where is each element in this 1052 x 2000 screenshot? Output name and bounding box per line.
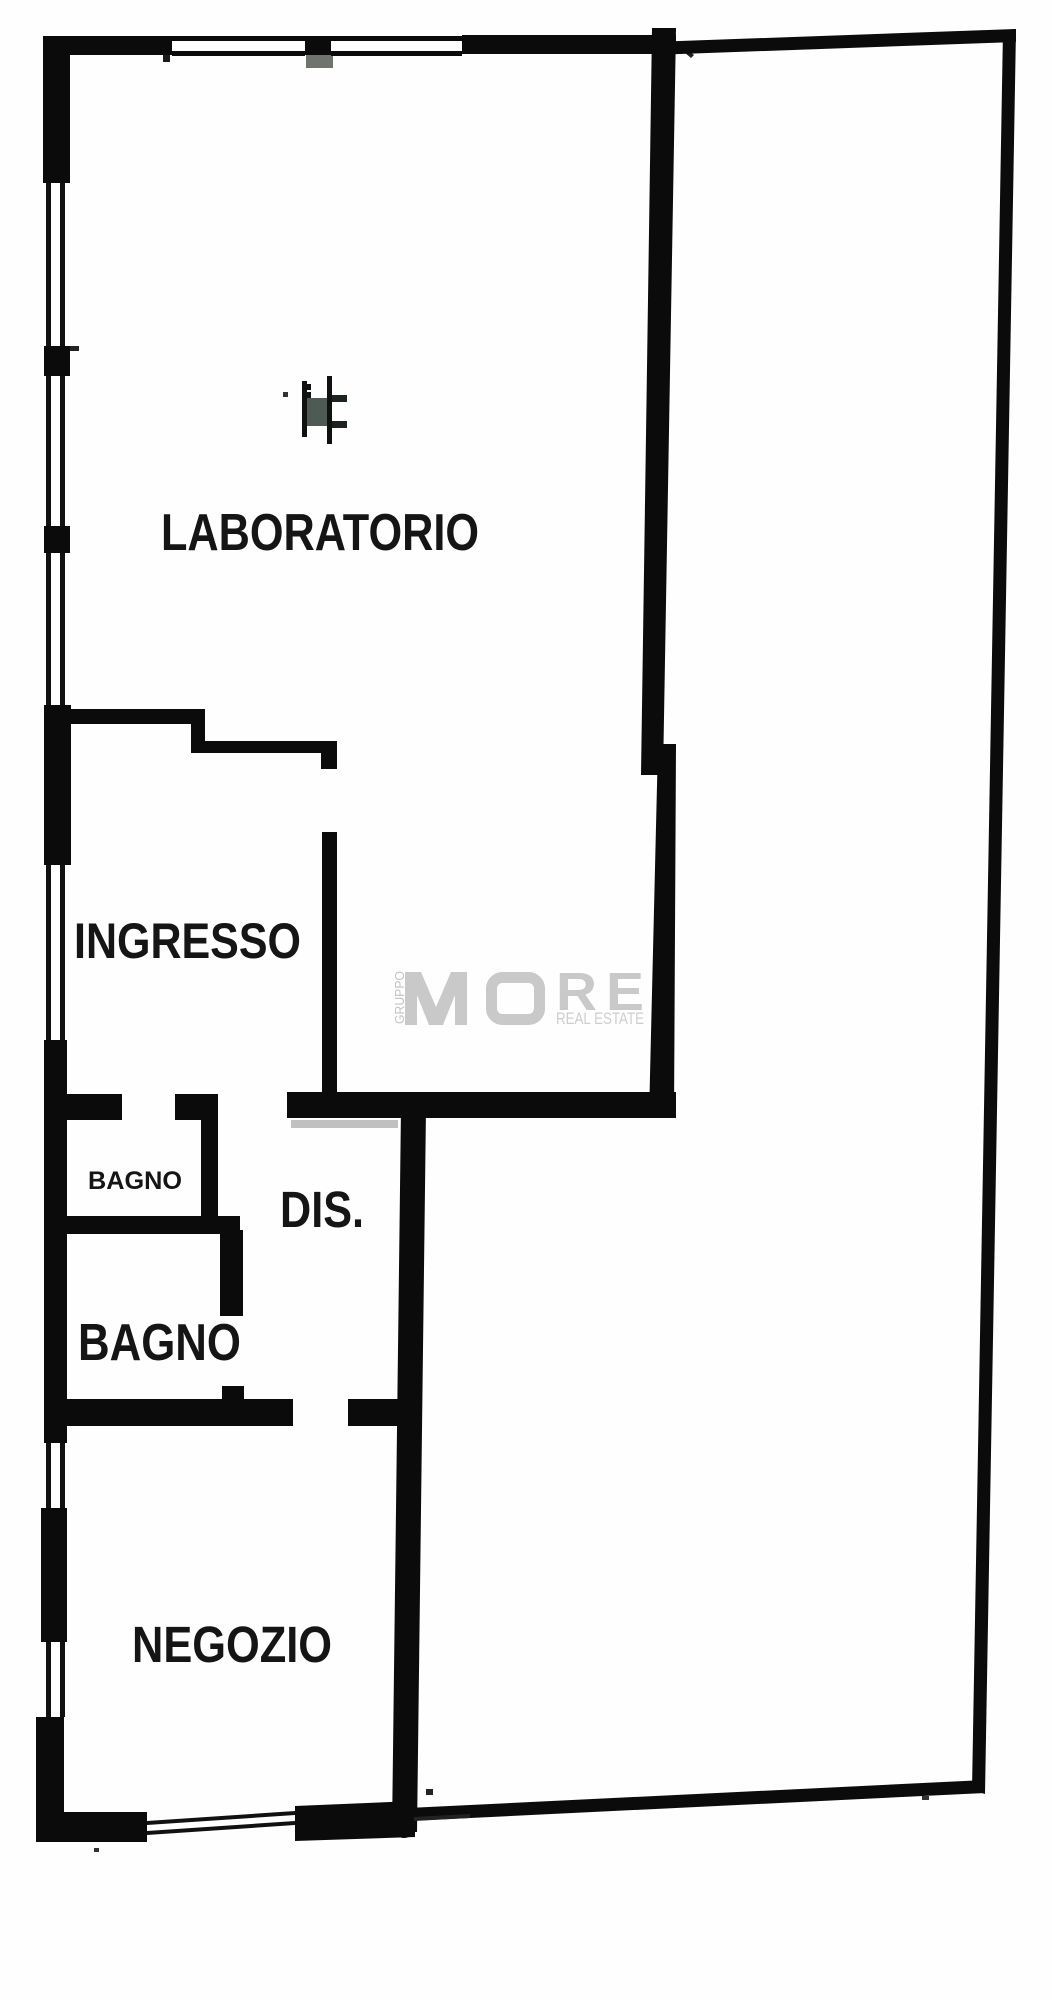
svg-text:LABORATORIO: LABORATORIO	[161, 503, 479, 561]
svg-text:BAGNO: BAGNO	[78, 1313, 241, 1371]
svg-text:REAL ESTATE: REAL ESTATE	[556, 1010, 644, 1028]
svg-text:GRUPPO: GRUPPO	[392, 971, 407, 1024]
svg-text:INGRESSO: INGRESSO	[74, 912, 301, 969]
svg-text:NEGOZIO: NEGOZIO	[132, 1616, 332, 1673]
svg-text:BAGNO: BAGNO	[88, 1167, 182, 1195]
svg-text:DIS.: DIS.	[280, 1181, 364, 1238]
